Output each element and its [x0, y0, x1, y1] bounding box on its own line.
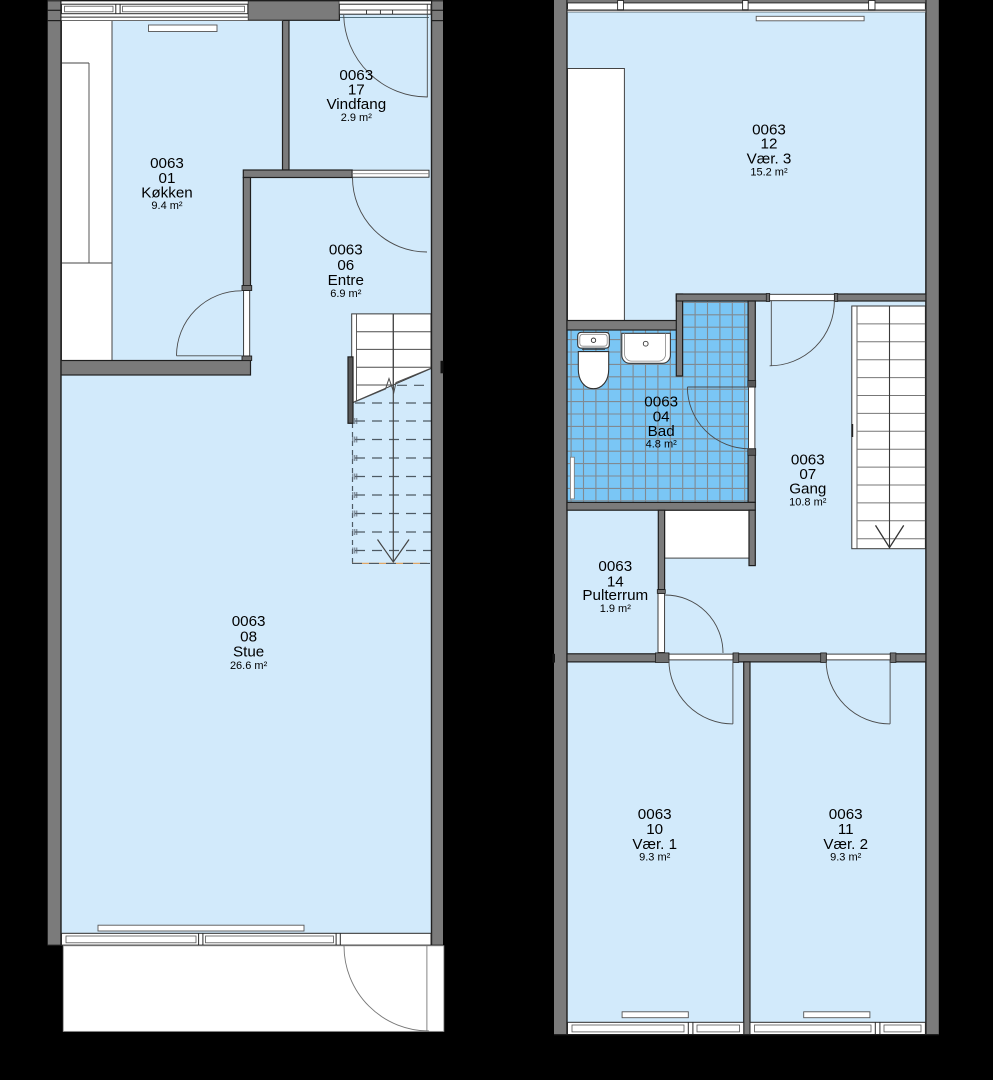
svg-text:9.3 m²: 9.3 m²: [639, 852, 671, 864]
svg-text:Vær. 3: Vær. 3: [747, 150, 792, 167]
svg-text:Vindfang: Vindfang: [326, 96, 386, 113]
svg-text:Køkken: Køkken: [141, 184, 193, 201]
svg-text:Entre: Entre: [328, 272, 364, 289]
svg-text:Pulterrum: Pulterrum: [582, 587, 648, 604]
svg-text:1.9 m²: 1.9 m²: [600, 603, 632, 615]
svg-text:Stue: Stue: [233, 644, 264, 661]
svg-text:4.8 m²: 4.8 m²: [646, 439, 678, 451]
svg-text:26.6 m²: 26.6 m²: [230, 660, 268, 672]
svg-text:6.9 m²: 6.9 m²: [330, 288, 362, 300]
svg-text:9.4 m²: 9.4 m²: [151, 200, 183, 212]
svg-text:9.3 m²: 9.3 m²: [830, 852, 862, 864]
svg-text:Bad: Bad: [648, 423, 675, 440]
svg-text:15.2 m²: 15.2 m²: [750, 167, 788, 179]
svg-text:2.9 m²: 2.9 m²: [341, 112, 373, 124]
svg-text:10.8 m²: 10.8 m²: [789, 497, 827, 509]
svg-text:Vær. 1: Vær. 1: [632, 836, 677, 853]
svg-text:Gang: Gang: [789, 481, 826, 498]
svg-text:Vær. 2: Vær. 2: [823, 836, 868, 853]
